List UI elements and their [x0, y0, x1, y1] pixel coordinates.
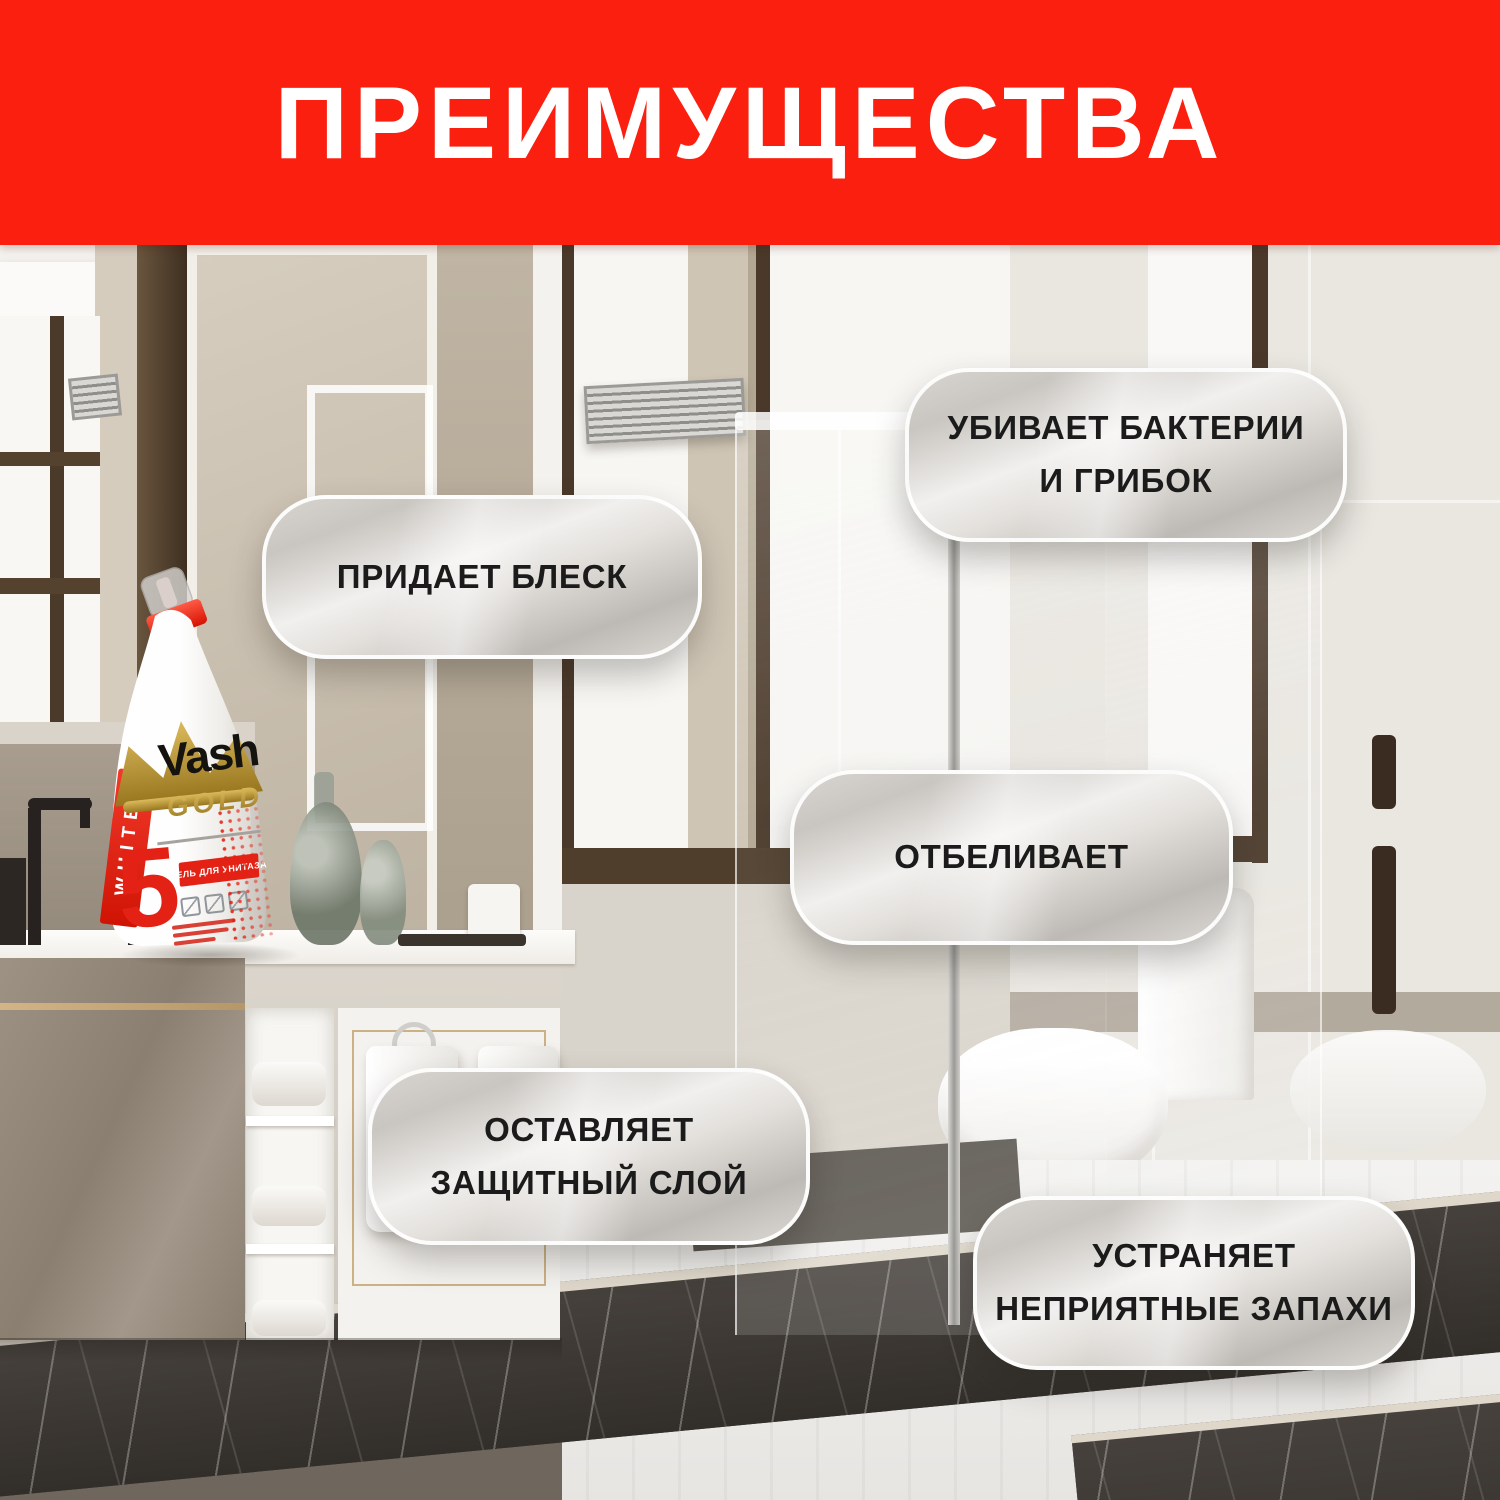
shelf-2 — [246, 1244, 334, 1254]
window-left-frame-vertical — [50, 316, 64, 722]
benefit-badge-removes-odors: УСТРАНЯЕТ НЕПРИЯТНЫЕ ЗАПАХИ — [973, 1196, 1415, 1370]
vanity-floor-shadow — [0, 1338, 562, 1362]
tissue-box — [468, 884, 520, 940]
faucet-1-tip — [80, 798, 90, 828]
brand-name: Vash — [149, 725, 268, 785]
benefit-label: ОСТАВЛЯЕТ ЗАЩИТНЫЙ СЛОЙ — [417, 1104, 761, 1210]
cabinet-handle-upper — [1372, 735, 1396, 809]
page-title: ПРЕИМУЩЕСТВА — [275, 72, 1226, 174]
window-left-frame-horizontal-1 — [0, 452, 100, 466]
benefit-label: УБИВАЕТ БАКТЕРИИ И ГРИБОК — [935, 402, 1317, 508]
benefit-badge-protective-layer: ОСТАВЛЯЕТ ЗАЩИТНЫЙ СЛОЙ — [368, 1068, 810, 1245]
benefit-label: ОТБЕЛИВАЕТ — [894, 831, 1129, 884]
counter-dark-object — [0, 858, 26, 945]
faucet-1 — [28, 808, 41, 945]
benefit-badge-kills-bacteria: УБИВАЕТ БАКТЕРИИ И ГРИБОК — [905, 368, 1347, 542]
shelf-1 — [246, 1116, 334, 1126]
decor-tray — [398, 934, 526, 946]
title-banner: ПРЕИМУЩЕСТВА — [0, 0, 1500, 245]
decor-vase-2 — [360, 840, 406, 945]
towel-roll-3 — [252, 1300, 326, 1336]
benefit-label: УСТРАНЯЕТ НЕПРИЯТНЫЕ ЗАПАХИ — [990, 1230, 1398, 1336]
ceiling-vent-icon — [584, 378, 747, 444]
vanity-island-panel — [0, 958, 245, 1340]
towel-roll-2 — [252, 1186, 326, 1226]
ceiling-vent-small — [68, 374, 122, 421]
benefit-label: ПРИДАЕТ БЛЕСК — [337, 551, 628, 604]
towel-roll-1 — [252, 1062, 326, 1106]
benefit-badge-whitens: ОТБЕЛИВАЕТ — [790, 770, 1233, 945]
benefit-badge-adds-shine: ПРИДАЕТ БЛЕСК — [262, 495, 702, 659]
vanity-brass-inlay — [0, 1003, 245, 1010]
cabinet-handle-lower — [1372, 846, 1396, 1014]
product-bottle: WHITE Vash GOLD 5 ГЕЛЬ ДЛЯ УНИТАЗА — [95, 560, 275, 960]
open-shelf-unit — [246, 1008, 334, 1340]
product-number: 5 — [113, 839, 183, 936]
infographic-card: WHITE Vash GOLD 5 ГЕЛЬ ДЛЯ УНИТАЗА — [0, 0, 1500, 1500]
